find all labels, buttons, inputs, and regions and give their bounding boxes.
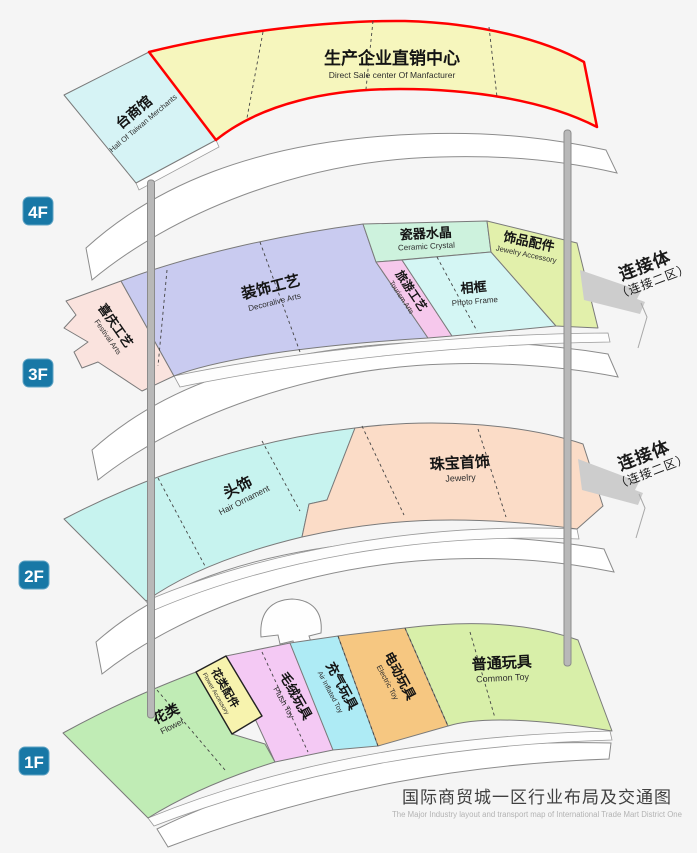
badge-1f-text: 1F [24, 753, 44, 772]
jewelry-label-zh: 珠宝首饰 [429, 452, 490, 473]
floor-badges: 4F 3F 2F 1F [19, 197, 53, 775]
section-direct-sale-center [149, 21, 597, 140]
floor-map-page: 台商馆 Hall Of Taiwan Merchants 生产企业直销中心 Di… [0, 0, 697, 853]
map-title: 国际商贸城一区行业布局及交通图 The Major Industry layou… [392, 788, 682, 819]
direct-sale-label-en: Direct Sale center Of Manfacturer [329, 70, 456, 80]
connector-3f-label: 连接体 （连接二区） [607, 241, 692, 302]
photo-frame-label-zh: 相框 [460, 279, 487, 296]
floor-map-svg: 台商馆 Hall Of Taiwan Merchants 生产企业直销中心 Di… [0, 0, 697, 853]
floor-2f: 头饰 Hair Ornament 珠宝首饰 Jewelry [64, 423, 603, 611]
pole-right [564, 130, 571, 666]
common-toy-label: 普通玩具 Common Toy [471, 652, 532, 684]
badge-4f: 4F [23, 197, 53, 225]
ceramic-crystal-label: 瓷器水晶 Ceramic Crystal [397, 225, 455, 253]
badge-2f: 2F [19, 561, 49, 589]
badge-3f-text: 3F [28, 365, 48, 384]
common-toy-label-zh: 普通玩具 [471, 652, 532, 673]
connector-2f-label: 连接体 （连接二区） [606, 431, 691, 492]
direct-sale-label-zh: 生产企业直销中心 [324, 48, 460, 68]
pole-left [148, 180, 155, 718]
badge-1f: 1F [19, 747, 49, 775]
jewelry-label-en: Jewelry [445, 472, 476, 484]
badge-3f: 3F [23, 359, 53, 387]
connector-3f: 连接体 （连接二区） [580, 241, 692, 348]
connector-2f: 连接体 （连接二区） [578, 431, 691, 538]
map-title-zh: 国际商贸城一区行业布局及交通图 [402, 788, 672, 807]
badge-2f-text: 2F [24, 567, 44, 586]
badge-4f-text: 4F [28, 203, 48, 222]
ceramic-crystal-label-zh: 瓷器水晶 [399, 225, 452, 243]
direct-sale-label: 生产企业直销中心 Direct Sale center Of Manfactur… [324, 48, 460, 80]
map-title-en: The Major Industry layout and transport … [392, 810, 682, 819]
